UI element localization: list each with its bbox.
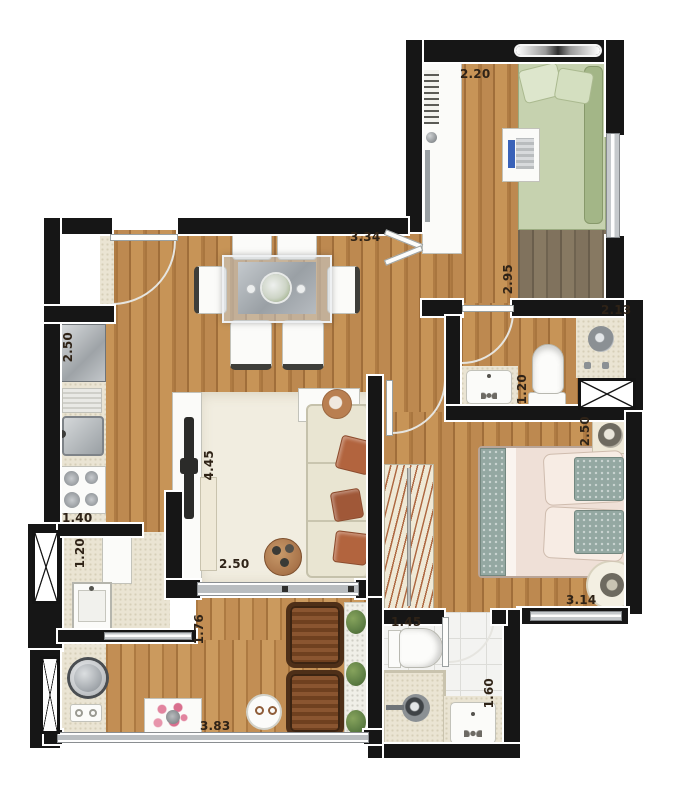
dimension-label: 3.14	[566, 594, 596, 607]
shower-tap	[584, 362, 591, 369]
laptop-icon	[508, 140, 515, 168]
shower-bar	[386, 705, 404, 710]
wall	[492, 610, 506, 624]
coffee-table-decor	[285, 544, 294, 553]
outlet	[75, 709, 83, 717]
toilet	[399, 628, 443, 668]
entry-door-leaf	[110, 234, 178, 241]
wall	[422, 300, 462, 316]
dimension-label: 3.83	[200, 720, 230, 733]
floor-plan-canvas: 2.20 2.95 3.34 2.13 1.20 2.50 1.40 1.20 …	[0, 0, 679, 800]
dimension-label: 1.40	[62, 512, 92, 525]
laptop-keyboard	[516, 138, 534, 169]
master-bedroom-door-arc	[392, 380, 446, 434]
coffee-table-decor	[272, 546, 281, 555]
wall	[166, 580, 200, 598]
window	[104, 632, 192, 640]
plant	[346, 610, 366, 634]
master-bedroom-door-leaf	[386, 380, 393, 436]
microwave	[62, 388, 102, 413]
dimension-label: 1.76	[193, 614, 206, 644]
barbecue-grill	[70, 660, 106, 696]
centerpiece-plant	[262, 274, 290, 302]
wall	[44, 306, 114, 322]
table-candle	[246, 284, 256, 294]
wall	[446, 316, 460, 408]
lounge-chair	[286, 670, 344, 736]
balcony-railing	[58, 733, 368, 742]
wall	[606, 40, 624, 135]
dining-chair	[282, 320, 324, 370]
dimension-label: 2.50	[219, 558, 249, 571]
sink-faucet	[464, 730, 482, 737]
wall	[368, 744, 520, 758]
plant	[346, 710, 366, 734]
closet-hanger-rail	[424, 70, 439, 124]
bedroom-top-dark-rug	[518, 228, 606, 306]
burner	[85, 471, 98, 484]
decor-bowl	[322, 389, 352, 419]
washing-machine	[102, 534, 132, 584]
closet-knob	[426, 132, 437, 143]
shower-head	[588, 326, 614, 352]
sink-faucet	[481, 392, 497, 399]
dining-chair	[230, 320, 272, 370]
sliding-door-handle	[282, 586, 288, 592]
coffee-table-decor	[280, 558, 289, 567]
service-shaft	[32, 530, 60, 604]
wardrobe-rail	[407, 468, 411, 606]
sink-faucet-dot	[471, 712, 475, 716]
wall	[606, 236, 624, 308]
lounge-chair	[286, 602, 344, 668]
flower-pot	[166, 710, 180, 724]
wall	[626, 412, 642, 614]
dimension-label: 2.95	[502, 264, 515, 294]
dimension-label: 4.45	[203, 450, 216, 480]
wall	[44, 218, 60, 524]
window-lens	[516, 46, 600, 55]
dimension-label: 2.50	[579, 416, 592, 446]
bed-pillow-teal	[574, 510, 624, 554]
wall	[406, 40, 422, 232]
bathroom-top-door-leaf	[462, 305, 514, 312]
bed-sheet-fold	[506, 448, 516, 576]
toilet	[532, 344, 564, 394]
tv	[184, 417, 194, 519]
bed-pillow-teal	[574, 457, 624, 501]
dimension-label: 1.60	[483, 678, 496, 708]
bathroom-top-door-arc	[462, 312, 514, 364]
sliding-door	[198, 583, 358, 595]
round-pouf-center	[600, 573, 624, 597]
burner	[85, 493, 98, 506]
burner	[64, 492, 80, 508]
toilet-tank	[528, 392, 566, 407]
sofa-pillow	[330, 488, 365, 523]
sink-faucet-dot	[487, 374, 491, 378]
dimension-label: 2.50	[62, 332, 75, 362]
dimension-label: 1.20	[516, 374, 529, 404]
sofa-pillow	[332, 530, 370, 566]
laundry-faucet	[89, 586, 94, 591]
plant	[346, 662, 366, 686]
sofa-bed-pillow	[553, 67, 594, 105]
dimension-label: 1.20	[74, 538, 87, 568]
outlet	[89, 709, 97, 717]
sliding-door-handle	[348, 586, 354, 592]
window	[530, 611, 622, 621]
laundry-sink-basin	[78, 590, 106, 622]
shower-head	[402, 694, 430, 722]
bed-foot-runner	[480, 448, 506, 576]
wall	[368, 376, 382, 618]
kitchen-sink	[62, 416, 104, 456]
service-shaft	[578, 378, 636, 410]
table-candle	[296, 284, 306, 294]
dimension-label: 2.13	[601, 304, 631, 317]
lowboard	[200, 477, 217, 571]
dimension-label: 2.20	[460, 68, 490, 81]
bathroom-bottom-door-arc	[449, 617, 495, 663]
bathroom-bottom-door-leaf	[442, 617, 449, 667]
wall	[58, 524, 142, 536]
cup	[268, 706, 277, 715]
closet-handle-bar	[425, 150, 430, 222]
shower-tap	[602, 362, 609, 369]
wall	[166, 492, 182, 592]
exterior-notch	[58, 232, 100, 306]
dimension-label: 3.34	[350, 231, 380, 244]
cup	[255, 706, 264, 715]
service-shaft	[40, 656, 60, 734]
table-lamp	[598, 423, 623, 448]
window	[606, 133, 620, 238]
wall	[504, 610, 520, 758]
entry-door-arc	[112, 241, 176, 305]
coffee-table	[264, 538, 302, 576]
burner	[64, 471, 79, 486]
dimension-label: 1.45	[391, 616, 421, 629]
